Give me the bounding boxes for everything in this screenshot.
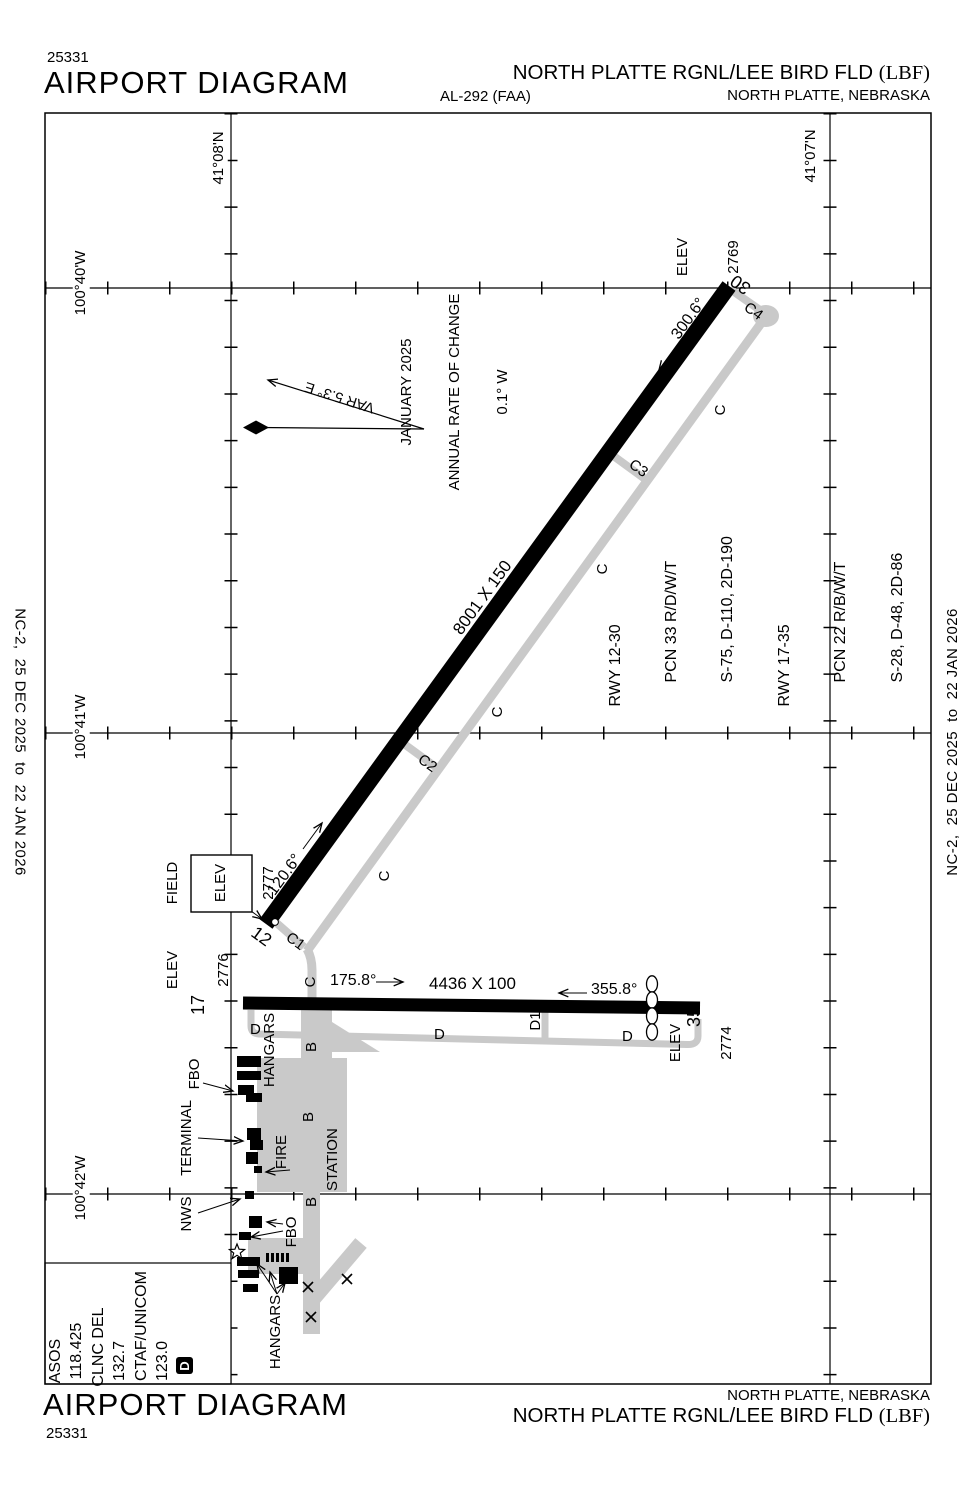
latitude-label: 41°07'N	[803, 128, 820, 183]
runway-end-number-17: 17	[189, 995, 209, 1015]
hangars-label: HANGARS	[268, 1295, 285, 1369]
taxiway-b-label: B	[304, 1197, 321, 1207]
fbo-building	[249, 1216, 262, 1228]
airport-id-top: (LBF)	[879, 62, 930, 84]
t-hangar-row	[281, 1253, 284, 1262]
airport-title-bottom: NORTH PLATTE RGNL/LEE BIRD FLD (LBF)	[510, 1405, 930, 1428]
runway-17-heading: 175.8°	[330, 972, 376, 990]
hangar-building	[238, 1270, 259, 1278]
clnc-del-label: CLNC DEL	[90, 1307, 108, 1386]
ctaf-unicom-label: CTAF/UNICOM	[133, 1271, 151, 1381]
nws-label: NWS	[179, 1197, 196, 1232]
taxiway-b-label: B	[301, 1112, 318, 1122]
airport-id-bottom: (LBF)	[879, 1405, 930, 1427]
taxiway-d-label: D	[434, 1027, 445, 1044]
hangar-building	[279, 1267, 298, 1284]
taxiway-b-label: B	[304, 1042, 321, 1052]
true-north-diamond	[243, 421, 269, 435]
taxiway-c-label: C	[713, 405, 730, 416]
terminal-label: TERMINAL	[179, 1100, 196, 1176]
runway-35-heading: 355.8°	[591, 981, 637, 999]
ctaf-unicom-frequency: 123.0	[154, 1341, 172, 1381]
taxiway-b-throat	[301, 1008, 332, 1060]
hangar-building	[243, 1284, 258, 1292]
fbo-label: FBO	[284, 1217, 301, 1248]
taxiway-c-label: C	[490, 707, 507, 718]
taxiway-d-label: D	[622, 1029, 633, 1046]
runway-30-elevation: ELEV 2769	[640, 238, 776, 276]
airport-location-bottom: NORTH PLATTE, NEBRASKA	[630, 1388, 930, 1405]
page-title-bottom: AIRPORT DIAGRAM	[43, 1388, 348, 1422]
runway-pcn-block: RWY 12-30 PCN 33 R/D/W/T S-75, D-110, 2D…	[569, 502, 945, 707]
runway-17-35-dimensions: 4436 X 100	[429, 975, 516, 994]
longitude-label: 100°42'W	[73, 1155, 90, 1222]
binding-edition-right: NC-2, 25 DEC 2025 to 22 JAN 2026	[945, 608, 962, 875]
fbo-label: FBO	[187, 1059, 204, 1090]
clnc-del-frequency: 132.7	[111, 1341, 129, 1381]
hangars-label: HANGARS	[262, 1013, 279, 1087]
page-title-top: AIRPORT DIAGRAM	[44, 66, 349, 100]
runway-end-marker	[272, 919, 279, 926]
asos-label: ASOS	[47, 1339, 65, 1383]
fire-station-label: FIRE STATION	[239, 1135, 375, 1191]
taxiway-c-label: C	[377, 871, 394, 882]
airport-beacon-icon	[229, 1244, 244, 1259]
longitude-label: 100°40'W	[73, 250, 90, 317]
runway-17-elevation: ELEV 2776	[130, 951, 266, 989]
fbo-building	[246, 1093, 262, 1102]
runway-17-35	[243, 1003, 700, 1008]
runway-35-elevation: ELEV 2774	[633, 1024, 769, 1062]
latitude-label: 41°08'N	[211, 130, 228, 185]
t-hangar-row	[266, 1253, 269, 1262]
variation-date-block: JANUARY 2025 ANNUAL RATE OF CHANGE 0.1° …	[367, 294, 543, 491]
hangar-building	[237, 1071, 261, 1080]
hangar-building	[237, 1056, 261, 1067]
airport-location-top: NORTH PLATTE, NEBRASKA	[630, 88, 930, 105]
class-d-airspace-letter: D	[177, 1361, 191, 1370]
t-hangar-row	[276, 1253, 279, 1262]
asos-frequency: 118.425	[68, 1323, 86, 1380]
fbo-building	[239, 1232, 251, 1240]
chart-code: AL-292 (FAA)	[440, 89, 531, 106]
taxiway-c-label: C	[303, 977, 320, 988]
chart-number-bottom: 25331	[46, 1426, 88, 1443]
airport-diagram-page: 25331 AIRPORT DIAGRAM AL-292 (FAA) NORTH…	[0, 0, 978, 1500]
taxiway-d-label: D	[250, 1022, 261, 1039]
taxiway-d1-label: D1	[528, 1011, 545, 1030]
airport-title-top: NORTH PLATTE RGNL/LEE BIRD FLD (LBF)	[510, 62, 930, 85]
binding-edition-left: NC-2, 25 DEC 2025 to 22 JAN 2026	[11, 608, 28, 875]
nws-building	[245, 1191, 254, 1199]
t-hangar-row	[286, 1253, 289, 1262]
taxiway-c-label: C	[595, 564, 612, 575]
longitude-label: 100°41'W	[73, 694, 90, 761]
t-hangar-row	[271, 1253, 274, 1262]
